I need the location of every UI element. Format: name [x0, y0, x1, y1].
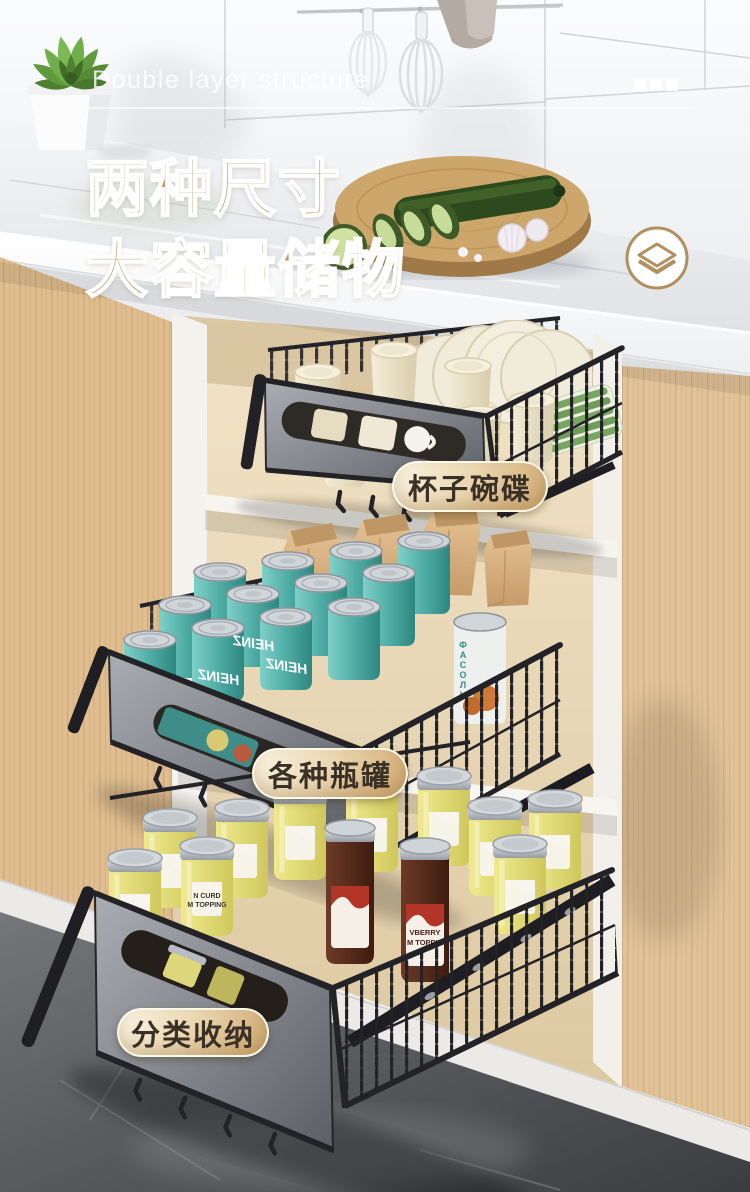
subtitle-underline: [88, 107, 690, 109]
label-badge-bottles-jars: 各种瓶罐: [252, 748, 408, 799]
door-shadow: [610, 700, 720, 940]
badge-text: 各种瓶罐: [268, 753, 392, 795]
poster-title-line1: 两种尺寸: [86, 138, 342, 228]
poster-title-line2: 大容量储物: [86, 219, 406, 309]
menu-square: [666, 79, 678, 91]
jar-dark-text: VBERRY: [410, 928, 441, 937]
layers-icon: [624, 225, 690, 291]
label-badge-cups-dishes: 杯子碗碟: [392, 461, 548, 512]
product-poster: HEINZ HEINZ HEINZ HEINZ ФАСОЛЬ N CURD M …: [0, 0, 750, 1192]
jar-yellow-text: N CURD: [193, 893, 220, 900]
cabinet-right-door: [610, 366, 750, 1128]
jar-yellow-text: M TOPPING: [187, 902, 227, 909]
subtitle-en: Double layer structure: [92, 66, 370, 95]
menu-squares-icon: [634, 79, 678, 91]
menu-square: [650, 79, 662, 91]
badge-text: 分类收纳: [131, 1012, 255, 1054]
badge-text: 杯子碗碟: [408, 466, 532, 508]
label-badge-sorted-storage: 分类收纳: [117, 1008, 269, 1057]
menu-square: [634, 79, 646, 91]
beans-can-text: ФАСОЛЬ: [458, 640, 468, 700]
